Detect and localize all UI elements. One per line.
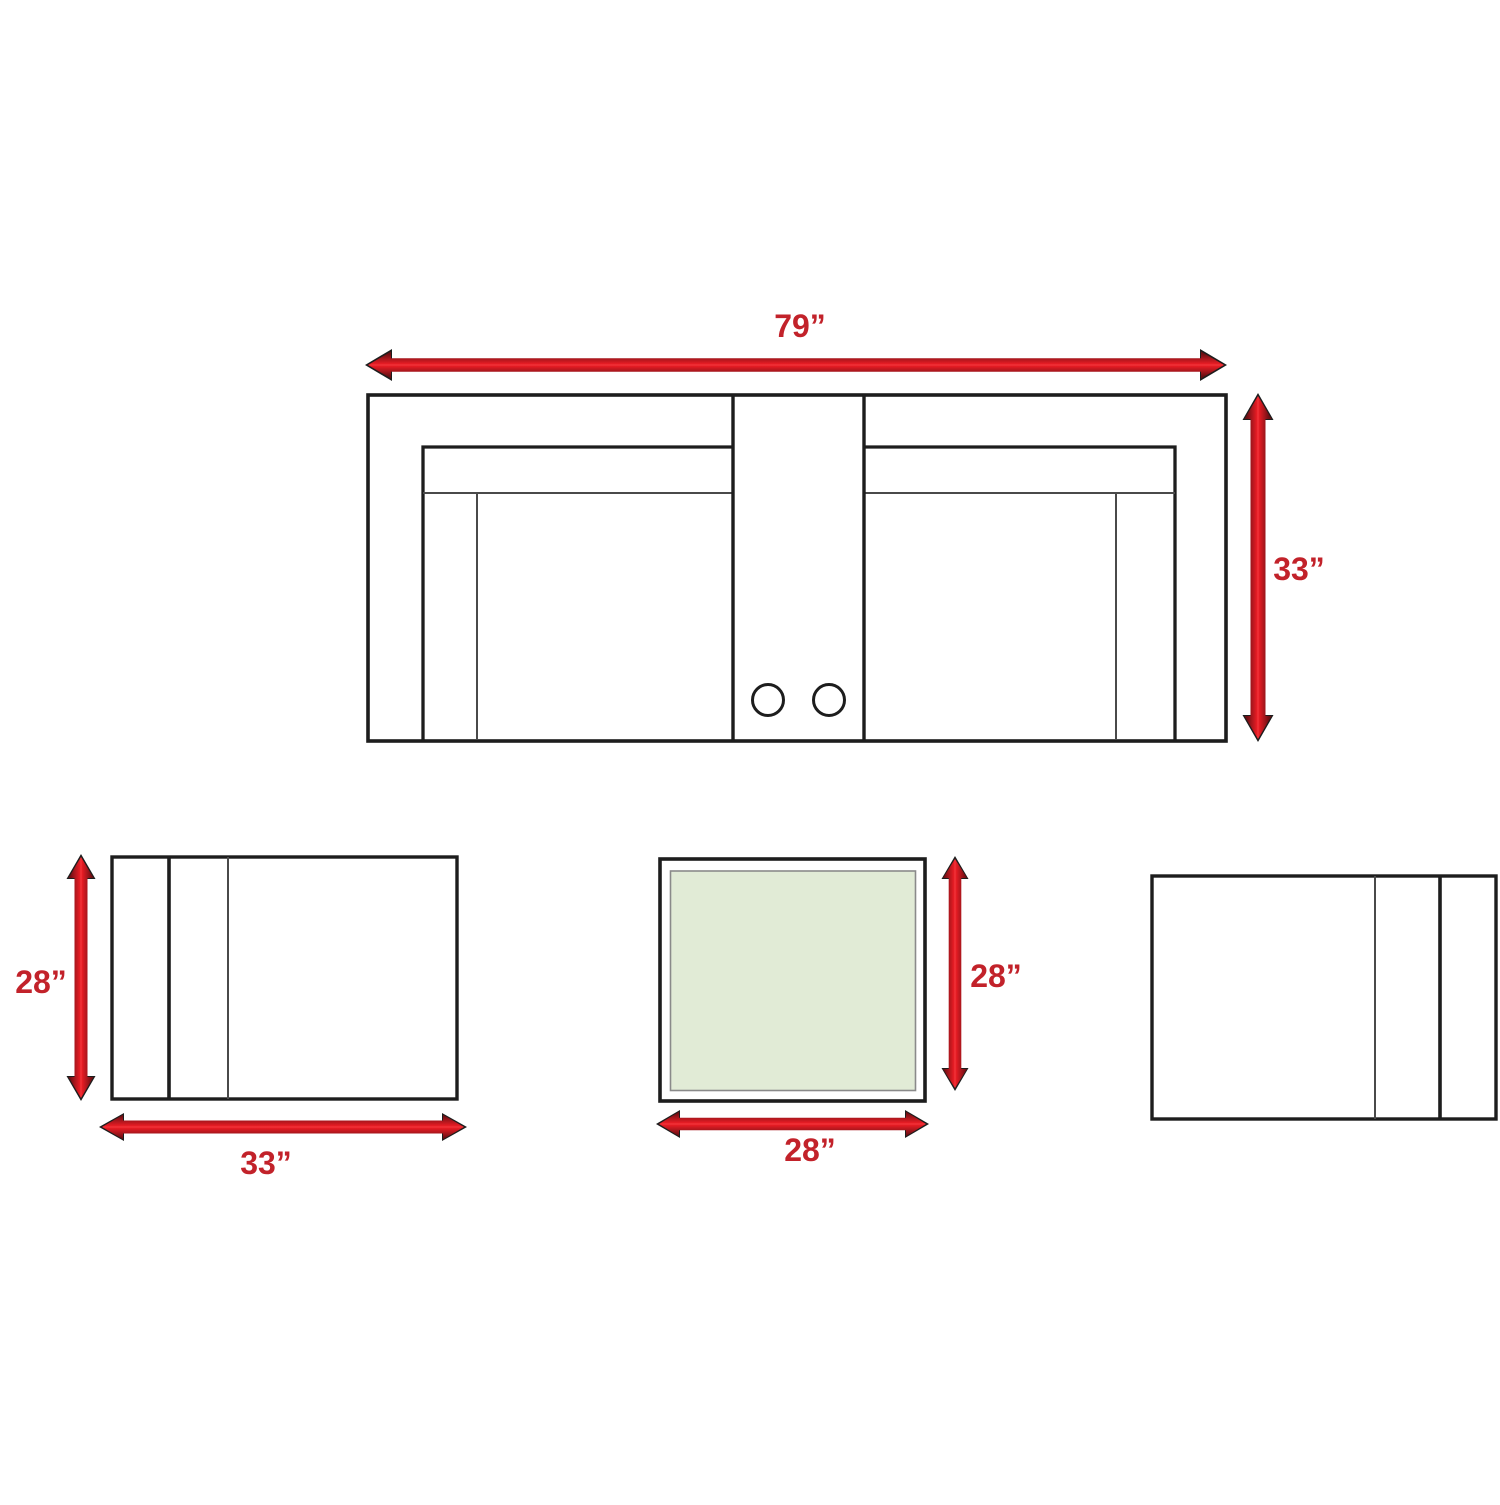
svg-text:28”: 28” (970, 958, 1022, 994)
svg-text:28”: 28” (784, 1132, 836, 1168)
svg-text:33”: 33” (1273, 551, 1325, 587)
svg-text:33”: 33” (240, 1145, 292, 1181)
svg-text:28”: 28” (15, 964, 67, 1000)
svg-text:79”: 79” (774, 308, 826, 344)
